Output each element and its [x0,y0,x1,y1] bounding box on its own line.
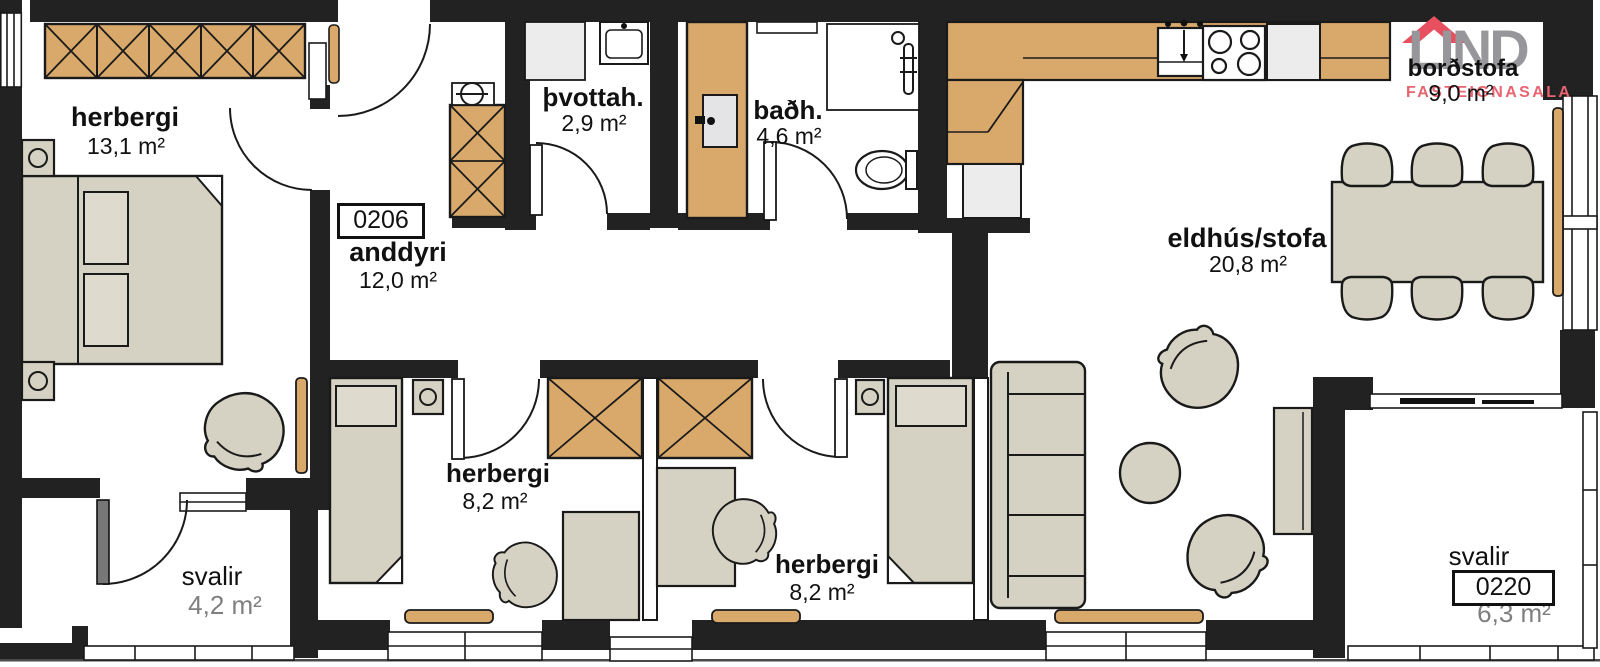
armchair [1144,314,1253,423]
unit-number-badge: 0220 [1452,570,1555,606]
room-name-bathroom: baðh. [753,97,822,124]
single-bed [330,378,402,583]
desk-chair [488,538,562,613]
unit-number-badge: 0206 [337,203,425,239]
nightstand [22,362,54,400]
desk [563,512,639,620]
double-bed [22,176,222,364]
sliding-door [1370,394,1562,408]
dining-chair [1483,277,1534,320]
kitchen-counter [947,20,1390,218]
sofa [991,362,1085,608]
dining-chair [1342,277,1393,320]
toilet [856,151,917,189]
nightstand [22,140,54,176]
room-name-bedroom-two: herbergi [446,460,550,487]
dining-chair [1412,144,1463,187]
coffee-table [1120,443,1180,503]
tv-stand [1274,408,1312,534]
armchair [194,382,293,480]
room-area-bedroom-main: 13,1 m² [87,134,165,158]
nightstand [413,380,443,414]
laundry-sink [600,22,648,64]
stove [1203,26,1265,80]
room-name-entry: anddyri [349,238,447,266]
room-name-kitchen-living: eldhús/stofa [1167,224,1326,252]
dining-chair [1412,277,1463,320]
room-name-balcony-left: svalir [182,563,243,590]
balcony-door-leaf [97,500,109,584]
nightstand [856,380,884,414]
shower [827,24,919,110]
room-area-bedroom-two: 8,2 m² [462,489,527,513]
room-name-bedroom-main: herbergi [71,103,179,131]
mirror [757,22,817,33]
dining-table [1332,182,1543,282]
room-area-entry: 12,0 m² [359,268,437,292]
fridge [1267,24,1320,80]
room-area-dining: 9,0 m² [1428,81,1493,105]
room-area-bathroom: 4,6 m² [756,124,821,148]
room-name-dining: borðstofa [1408,56,1519,81]
room-name-balcony-right: svalir [1449,543,1510,570]
dining-chair [1483,144,1534,187]
laundry-fixtures [525,22,648,80]
room-area-bedroom-three: 8,2 m² [789,580,854,604]
dining-chair [1342,144,1393,187]
single-bed [888,378,973,583]
room-area-kitchen-living: 20,8 m² [1209,252,1287,276]
armchair [1171,500,1282,610]
room-name-bedroom-three: herbergi [775,551,879,578]
washer [525,22,585,80]
room-name-laundry: þvottah. [542,84,643,111]
entrance-door-leaf [329,25,339,83]
room-area-balcony-left: 4,2 m² [188,592,262,619]
room-area-laundry: 2,9 m² [561,111,626,135]
floor-plan: LIND FASTEIGNASALA herbergi 13,1 m² 0206… [0,0,1600,667]
